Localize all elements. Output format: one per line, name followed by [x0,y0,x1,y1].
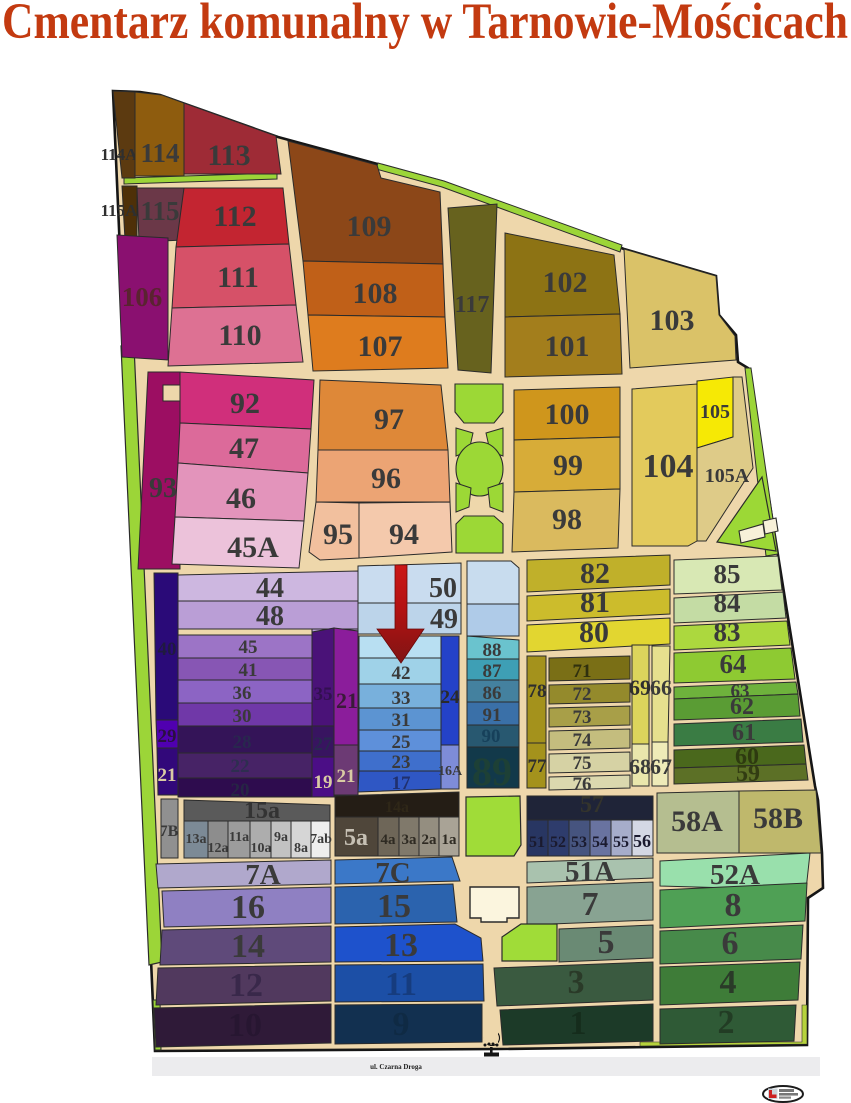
svg-text:21: 21 [158,765,177,786]
svg-text:117: 117 [455,292,490,318]
svg-text:48: 48 [256,601,284,632]
svg-text:5a: 5a [344,825,368,851]
svg-text:55: 55 [613,834,629,851]
svg-text:44: 44 [256,573,284,604]
svg-text:11a: 11a [229,830,249,845]
svg-text:36: 36 [233,683,252,704]
svg-text:53: 53 [571,834,587,851]
svg-text:16: 16 [231,889,265,926]
svg-text:115: 115 [140,196,179,226]
svg-text:107: 107 [358,330,403,363]
svg-text:92: 92 [230,387,260,420]
svg-text:58A: 58A [671,805,723,838]
svg-text:58B: 58B [753,802,803,835]
svg-text:56: 56 [633,831,651,851]
svg-text:84: 84 [714,588,741,618]
svg-text:7: 7 [582,886,599,923]
svg-text:46: 46 [226,482,256,515]
svg-text:30: 30 [233,706,252,727]
svg-text:7C: 7C [375,857,410,889]
svg-text:113: 113 [207,139,250,172]
svg-text:8a: 8a [294,841,308,856]
svg-text:51A: 51A [565,856,615,888]
svg-text:21: 21 [336,688,358,713]
svg-text:115A: 115A [101,201,139,220]
svg-text:12a: 12a [208,841,229,856]
svg-text:64: 64 [720,649,747,679]
svg-text:52: 52 [550,834,566,851]
svg-text:85: 85 [714,559,741,589]
svg-text:4a: 4a [381,832,397,848]
svg-text:2: 2 [718,1004,735,1041]
svg-text:90: 90 [482,726,501,747]
svg-text:72: 72 [573,684,592,705]
svg-text:62: 62 [730,694,754,720]
svg-text:47: 47 [229,432,259,465]
svg-text:50: 50 [429,573,457,604]
svg-text:41: 41 [239,660,258,681]
svg-text:66: 66 [650,675,672,700]
svg-text:1: 1 [570,1005,587,1042]
svg-text:14: 14 [231,928,265,965]
svg-text:68: 68 [629,754,651,779]
svg-text:78: 78 [528,681,547,702]
svg-text:114: 114 [140,138,179,168]
svg-text:24: 24 [441,687,461,708]
svg-text:10: 10 [228,1007,262,1044]
svg-text:25: 25 [392,732,411,753]
svg-text:45: 45 [239,637,258,658]
svg-text:97: 97 [374,403,404,436]
svg-text:3: 3 [568,964,585,1001]
svg-text:104: 104 [643,448,694,485]
svg-text:28: 28 [233,732,252,753]
svg-text:4: 4 [720,964,737,1001]
svg-text:80: 80 [579,616,609,649]
svg-text:83: 83 [714,617,741,647]
svg-text:105: 105 [700,401,730,423]
svg-text:49: 49 [430,604,458,635]
svg-text:19: 19 [314,772,333,793]
svg-text:ul. Czarna Droga: ul. Czarna Droga [370,1063,422,1071]
svg-text:14a: 14a [385,799,409,816]
svg-text:16A: 16A [438,764,463,779]
svg-text:91: 91 [483,705,502,726]
svg-text:57: 57 [580,792,604,818]
svg-text:94: 94 [389,518,419,551]
svg-text:89: 89 [472,749,512,794]
svg-text:9a: 9a [274,830,288,845]
svg-text:96: 96 [371,462,401,495]
svg-text:86: 86 [483,683,502,704]
svg-text:13: 13 [384,927,418,964]
svg-text:51: 51 [529,834,545,851]
svg-text:111: 111 [217,261,259,294]
svg-text:87: 87 [483,661,503,682]
svg-text:12: 12 [229,967,263,1004]
svg-text:73: 73 [573,707,592,728]
svg-text:21: 21 [337,766,356,787]
svg-text:77: 77 [528,756,548,777]
svg-text:110: 110 [218,319,261,352]
svg-text:106: 106 [122,282,163,312]
svg-text:15a: 15a [244,798,280,824]
svg-text:102: 102 [543,266,588,299]
svg-text:95: 95 [323,518,353,551]
svg-text:112: 112 [213,200,256,233]
svg-text:7A: 7A [245,859,281,891]
svg-text:99: 99 [553,449,583,482]
svg-text:7B: 7B [160,823,179,840]
svg-text:3a: 3a [402,832,418,848]
svg-text:35: 35 [314,684,333,705]
svg-text:23: 23 [392,752,411,773]
svg-text:93: 93 [149,473,177,504]
svg-text:54: 54 [592,834,608,851]
svg-text:75: 75 [573,753,592,774]
svg-text:5: 5 [598,924,615,961]
svg-text:6: 6 [722,925,739,962]
svg-text:114A: 114A [101,145,139,164]
svg-text:98: 98 [552,503,582,536]
svg-text:Cmentarz komunalny w Tarnowie-: Cmentarz komunalny w Tarnowie-Mościcach [2,0,848,50]
svg-text:15: 15 [377,888,411,925]
svg-text:67: 67 [650,754,672,779]
svg-text:108: 108 [353,277,398,310]
svg-text:105A: 105A [705,465,750,487]
svg-text:101: 101 [545,330,590,363]
svg-text:13a: 13a [186,832,207,847]
svg-text:71: 71 [573,661,592,682]
svg-text:33: 33 [392,688,411,709]
svg-text:17: 17 [392,773,412,794]
svg-text:103: 103 [650,304,695,337]
svg-text:69: 69 [629,675,651,700]
svg-text:74: 74 [573,730,593,751]
svg-text:8: 8 [725,887,742,924]
svg-text:109: 109 [347,210,392,243]
svg-text:11: 11 [385,966,417,1003]
svg-text:2a: 2a [422,832,438,848]
svg-text:10a: 10a [251,841,272,856]
svg-text:81: 81 [580,586,610,619]
svg-text:22: 22 [231,756,250,777]
svg-text:9: 9 [393,1006,410,1043]
svg-text:27: 27 [314,734,334,755]
svg-text:59: 59 [736,761,760,787]
svg-text:7ab: 7ab [310,832,332,847]
svg-text:61: 61 [732,720,756,746]
svg-text:31: 31 [392,710,411,731]
svg-text:45A: 45A [227,531,279,564]
svg-text:88: 88 [483,640,502,661]
svg-text:29: 29 [158,726,177,747]
svg-text:1a: 1a [442,832,458,848]
svg-text:40: 40 [158,639,177,660]
svg-text:42: 42 [392,663,411,684]
svg-text:100: 100 [545,398,590,431]
